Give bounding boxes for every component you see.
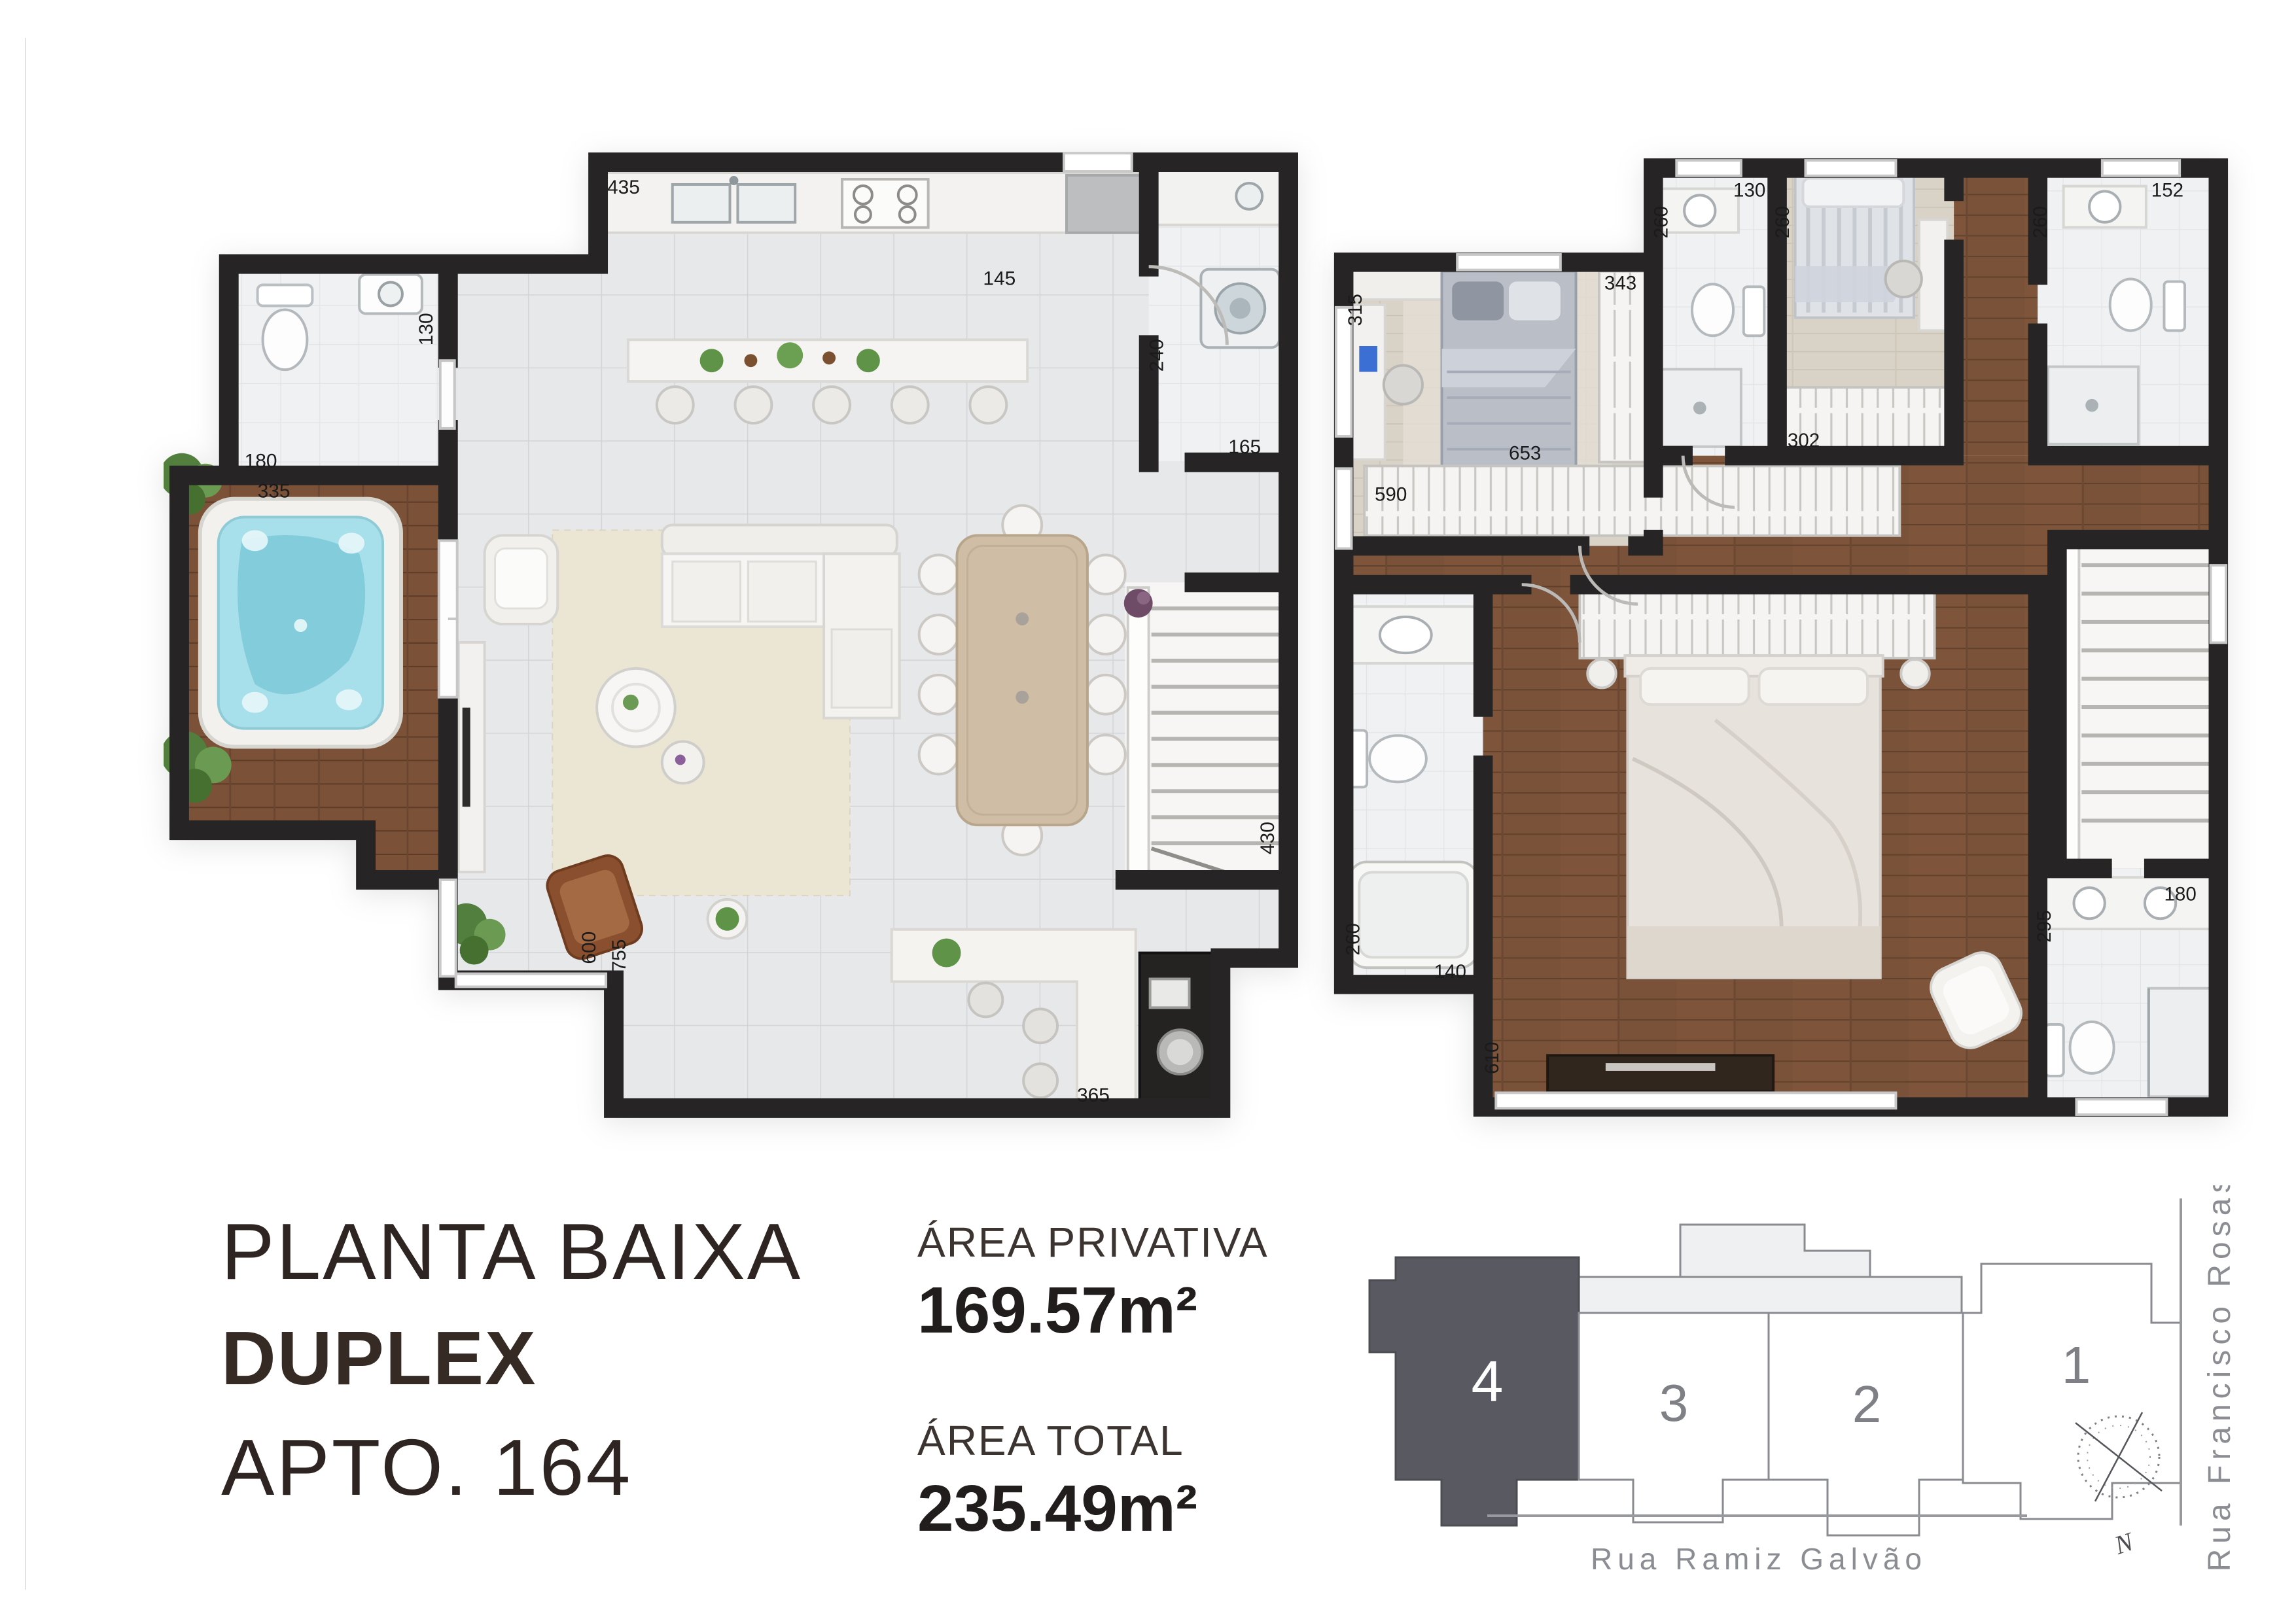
site-top-structure: [1680, 1225, 1870, 1277]
stairs-window: [2210, 565, 2226, 642]
dim-laundry-width: 165: [1228, 436, 1261, 458]
master-window-band: [1496, 1092, 1896, 1108]
dim-stairs-length: 430: [1257, 822, 1279, 854]
dim-bath2-width: 152: [2151, 179, 2183, 201]
site-unit-1-number: 1: [2062, 1336, 2091, 1394]
floor-plant-bowl: [708, 899, 747, 939]
dim-bedroom1-width: 315: [1345, 294, 1366, 326]
upper-floor-plan: 315 343 260 130 260 302 260 152 590 653 …: [1328, 152, 2231, 1126]
bath3-window: [2076, 1099, 2166, 1115]
lavabo-toilet: [258, 285, 313, 370]
site-unit-2-number: 2: [1852, 1375, 1882, 1433]
bath1-window: [1676, 160, 1741, 176]
dim-bath3-width: 180: [2164, 884, 2196, 905]
living-window-left: [440, 880, 456, 977]
master-wardrobe: [1580, 589, 1934, 658]
living-window-bottom: [456, 974, 606, 987]
dim-masterbath-depth: 260: [1342, 923, 1364, 955]
armchair-white: [485, 535, 558, 624]
lavabo-sink: [359, 275, 422, 314]
site-unit-4-number: 4: [1472, 1349, 1504, 1414]
master-bed: [1587, 655, 1929, 978]
site-plan: 4 3 2 1 Rua Ramiz Galvão Rua Francisco R…: [1366, 1185, 2295, 1617]
dim-living-door-a: 600: [578, 932, 600, 964]
dim-lavabo-width: 130: [415, 313, 437, 345]
bedroom2-window: [1805, 160, 1896, 176]
bedroom1-window-top: [1457, 254, 1561, 270]
dim-bath3-depth: 295: [2034, 910, 2055, 942]
total-area-label: ÁREA TOTAL: [917, 1416, 1269, 1465]
dim-bar-width: 365: [1077, 1085, 1110, 1106]
apartment-number: APTO. 164: [221, 1427, 802, 1507]
dim-bath2-depth: 260: [2030, 206, 2051, 238]
total-area-value: 235.49m²: [917, 1471, 1269, 1546]
dim-bath1-width: 130: [1733, 179, 1765, 201]
dim-terrace-width: 335: [258, 481, 291, 502]
lower-floor-plan: 435 145 130 180 335 240 165 600 755 430 …: [164, 149, 1299, 1121]
dim-hall-wardrobe: 590: [1375, 484, 1407, 506]
dim-master-width: 610: [1481, 1042, 1503, 1074]
dim-kitchen-width: 435: [607, 177, 640, 198]
areas-block: ÁREA PRIVATIVA 169.57m² ÁREA TOTAL 235.4…: [917, 1218, 1269, 1546]
hall-wardrobe: [1364, 466, 1899, 535]
dim-laundry-depth: 240: [1146, 339, 1168, 372]
bbq-counter: [1140, 953, 1221, 1108]
page-title: PLANTA BAIXA: [221, 1212, 802, 1291]
hall-window-left: [1336, 468, 1352, 548]
kitchen-window: [1064, 153, 1132, 171]
dim-bedroom1-wardrobe: 343: [1604, 272, 1636, 294]
dim-masterbath-width: 140: [1434, 961, 1466, 983]
page-subtitle-duplex: DUPLEX: [221, 1320, 802, 1396]
dim-bedroom2-closet: 302: [1788, 430, 1820, 451]
private-area-label: ÁREA PRIVATIVA: [917, 1218, 1269, 1266]
site-unit-3-number: 3: [1659, 1374, 1689, 1432]
dim-bath1-depth: 260: [1650, 206, 1672, 238]
hot-tub: [200, 499, 401, 747]
lavabo-door: [440, 360, 455, 428]
site-corridor: [1579, 1277, 1962, 1313]
street-right-name: Rua Francisco Rosas: [2202, 1185, 2237, 1571]
dim-lavabo-door: 180: [245, 451, 277, 472]
street-bottom-name: Rua Ramiz Galvão: [1591, 1542, 1927, 1576]
dim-living-door-b: 755: [609, 939, 630, 972]
dim-hall-length: 653: [1509, 442, 1541, 464]
bedroom1-window-left: [1336, 307, 1352, 436]
tv-bench: [459, 642, 485, 872]
master-tv-cabinet: [1547, 1055, 1773, 1091]
private-area-value: 169.57m²: [917, 1273, 1269, 1348]
kitchen-counter: [605, 173, 1145, 233]
title-block: PLANTA BAIXA DUPLEX APTO. 164: [221, 1212, 802, 1507]
dim-kitchen-counter: 145: [983, 268, 1016, 290]
dim-bedroom2-depth: 260: [1772, 206, 1793, 238]
compass-north-label: N: [2110, 1526, 2138, 1560]
hall-upper-floor: [1954, 168, 2038, 456]
page-edge-line: [25, 38, 26, 1590]
bath2-window: [2102, 160, 2180, 176]
